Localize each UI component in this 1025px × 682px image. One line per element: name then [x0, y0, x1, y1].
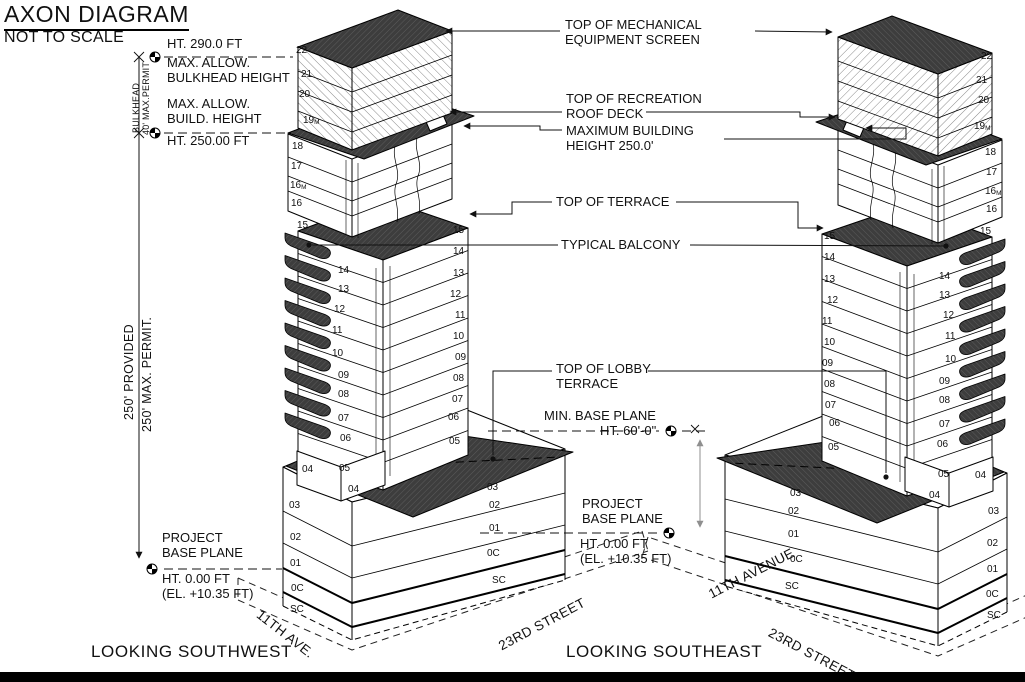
floor-label: 10	[332, 348, 344, 359]
floor-label: 01	[290, 558, 302, 569]
floor-label: 18	[292, 141, 304, 152]
floor-label: 08	[338, 389, 350, 400]
floor-label: 04	[929, 490, 941, 501]
floor-label: 0C	[986, 589, 999, 600]
floor-label: 07	[939, 419, 951, 430]
label-top-of-terrace: TOP OF TERRACE	[556, 195, 669, 210]
label-max-building-2: HEIGHT 250.0'	[566, 139, 654, 154]
floor-label: 05	[339, 463, 351, 474]
sheet-border-bar	[0, 672, 1025, 682]
floor-label: 17	[291, 161, 303, 172]
label-project-base-plane-el: (EL. +10.35 FT)	[580, 552, 671, 567]
label-rec-roof-2: ROOF DECK	[566, 107, 643, 122]
floor-label: 09	[939, 376, 951, 387]
floor-label: 14	[939, 271, 951, 282]
floor-label: 11	[455, 310, 466, 321]
floor-label: 05	[938, 469, 950, 480]
floor-label: 12	[943, 310, 955, 321]
floor-label: 09	[822, 358, 834, 369]
floor-label: 01	[987, 564, 999, 575]
label-typical-balcony: TYPICAL BALCONY	[561, 238, 680, 253]
floor-label: 14	[338, 265, 350, 276]
floor-label: 20	[978, 95, 990, 106]
floor-label: 07	[452, 394, 464, 405]
floor-label: 14	[453, 246, 465, 257]
label-pbp-left-1: PROJECT	[162, 531, 223, 546]
floor-label: 02	[788, 506, 800, 517]
floor-label: 09	[338, 370, 350, 381]
floor-label: 01	[489, 523, 501, 534]
floor-label: 10	[453, 331, 465, 342]
floor-label: 04	[302, 464, 314, 475]
page-subtitle: NOT TO SCALE	[4, 29, 124, 47]
floor-label: SC	[987, 610, 1001, 621]
label-mech-screen-1: TOP OF MECHANICAL	[565, 18, 702, 33]
label-min-base-plane: MIN. BASE PLANE	[544, 409, 656, 424]
floor-label: 04	[975, 470, 987, 481]
dim-max-allow-build-2: BUILD. HEIGHT	[167, 112, 262, 127]
floor-label: 08	[453, 373, 465, 384]
floor-label: 03	[988, 506, 1000, 517]
floor-label: 06	[829, 418, 841, 429]
floor-label: 20	[299, 89, 311, 100]
dim-max-allow-bulkhead-2: BULKHEAD HEIGHT	[167, 71, 290, 86]
label-project-base-plane-ht: HT. 0.00 FT	[580, 537, 648, 552]
dim-ht-290: HT. 290.0 FT	[167, 37, 242, 52]
floor-label: 21	[301, 69, 313, 80]
floor-label: SC	[785, 581, 799, 592]
floor-label: 05	[828, 442, 840, 453]
floor-label: 07	[338, 413, 350, 424]
floor-label: 06	[448, 412, 460, 423]
label-pbp-left-el: (EL. +10.35 FT)	[162, 587, 253, 602]
floor-label: 03	[487, 482, 499, 493]
dim-max-allow-build-1: MAX. ALLOW.	[167, 97, 250, 112]
floor-label: 0C	[291, 583, 304, 594]
floor-label: 06	[340, 433, 352, 444]
floor-label: 12	[450, 289, 462, 300]
floor-label: 03	[289, 500, 301, 511]
floor-label: 08	[939, 395, 951, 406]
floor-label: SC	[290, 604, 304, 615]
floor-label: 10	[945, 354, 957, 365]
dim-250-max-permit: 250' MAX. PERMIT.	[140, 317, 154, 432]
floor-label: 15	[980, 226, 992, 237]
floor-label: 12	[827, 295, 839, 306]
floor-label: 18	[985, 147, 997, 158]
axon-diagram-page: 22212019M181716M161514131211100908070605…	[0, 0, 1025, 682]
floor-label: 16	[986, 204, 998, 215]
dim-bulkhead-permit-vertical: 40' MAX.PERMIT	[141, 62, 151, 135]
label-lobby-terrace-1: TOP OF LOBBY	[556, 362, 651, 377]
page-title: AXON DIAGRAM	[4, 1, 189, 31]
floor-label: 13	[824, 274, 836, 285]
floor-label: 08	[824, 379, 836, 390]
floor-label: 05	[449, 436, 461, 447]
floor-label: 15	[453, 225, 465, 236]
floor-label: 22	[981, 51, 993, 62]
floor-label: 13	[939, 290, 951, 301]
floor-label: 21	[976, 75, 988, 86]
floor-label: 11	[822, 316, 833, 327]
floor-label: 15	[824, 231, 836, 242]
floor-label: 07	[825, 400, 837, 411]
floor-label: 13	[338, 284, 350, 295]
floor-label: 0C	[487, 548, 500, 559]
floor-label: 11	[945, 331, 956, 342]
floor-label: 14	[824, 252, 836, 263]
floor-label: SC	[492, 575, 506, 586]
label-pbp-left-2: BASE PLANE	[162, 546, 243, 561]
floor-label: 12	[334, 304, 346, 315]
dim-max-allow-bulkhead-1: MAX. ALLOW.	[167, 56, 250, 71]
dim-ht-250: HT. 250.00 FT	[167, 134, 249, 149]
floor-label: 22	[296, 45, 308, 56]
floor-label: 15	[297, 220, 309, 231]
floor-label: 02	[987, 538, 999, 549]
floor-label: 09	[455, 352, 467, 363]
label-pbp-left-ht: HT. 0.00 FT	[162, 572, 230, 587]
caption-looking-southeast: LOOKING SOUTHEAST	[566, 642, 762, 662]
floor-label: 02	[489, 500, 501, 511]
dim-250-provided: 250' PROVIDED	[122, 324, 136, 420]
label-rec-roof-1: TOP OF RECREATION	[566, 92, 702, 107]
label-project-base-plane-1: PROJECT	[582, 497, 643, 512]
floor-label: 06	[937, 439, 949, 450]
floor-label: 11	[332, 325, 343, 336]
floor-label: 02	[290, 532, 302, 543]
caption-looking-southwest: LOOKING SOUTHWEST	[91, 642, 292, 662]
floor-label: 04	[348, 484, 360, 495]
label-max-building-1: MAXIMUM BUILDING	[566, 124, 694, 139]
floor-label: 16	[291, 198, 303, 209]
floor-label: 03	[790, 488, 802, 499]
floor-label: 17	[986, 167, 998, 178]
floor-label: 01	[788, 529, 800, 540]
label-lobby-terrace-2: TERRACE	[556, 377, 618, 392]
label-project-base-plane-2: BASE PLANE	[582, 512, 663, 527]
label-min-base-plane-ht: HT. 60'-0"	[600, 424, 656, 439]
label-mech-screen-2: EQUIPMENT SCREEN	[565, 33, 700, 48]
floor-label: 10	[824, 337, 836, 348]
floor-label: 13	[453, 268, 465, 279]
dim-bulkhead-vertical: BULKHEAD	[131, 83, 141, 133]
